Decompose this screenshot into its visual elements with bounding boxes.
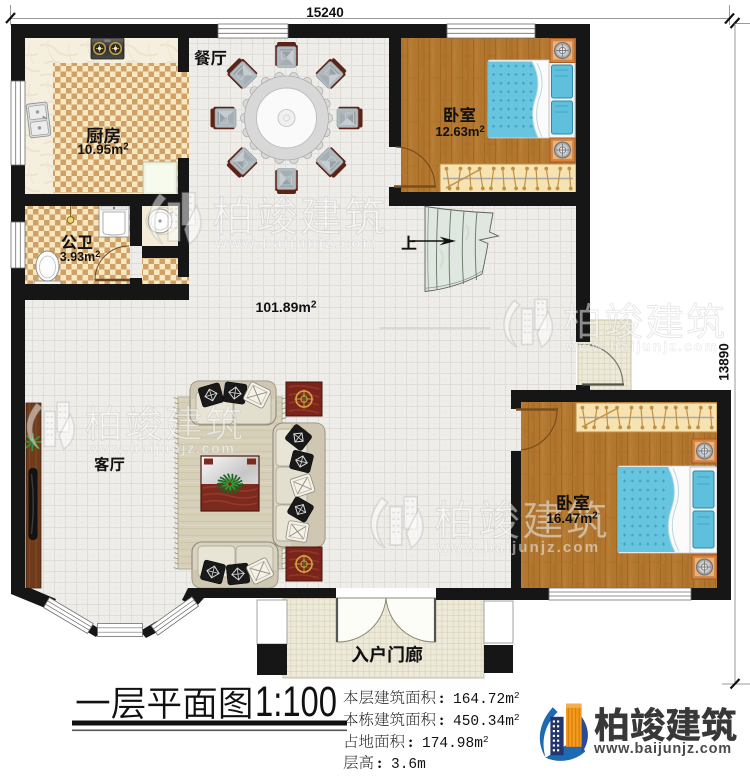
svg-text:12.63m2: 12.63m2 (435, 123, 484, 139)
svg-text:www.baijunjz.com: www.baijunjz.com (565, 339, 719, 355)
svg-text:174.98m2: 174.98m2 (422, 734, 489, 752)
svg-text:www.baijunjz.com: www.baijunjz.com (593, 741, 732, 757)
svg-text:164.72m2: 164.72m2 (453, 690, 520, 708)
svg-text:16.47m2: 16.47m2 (546, 511, 597, 526)
svg-text::: : (408, 734, 413, 751)
svg-text:101.89m2: 101.89m2 (256, 299, 317, 315)
svg-text:www.baijunjz.com: www.baijunjz.com (214, 235, 378, 252)
svg-text:www.baijunjz.com: www.baijunjz.com (436, 539, 600, 556)
svg-text::: : (439, 690, 444, 707)
svg-text:www.baijunjz.com: www.baijunjz.com (86, 440, 236, 456)
svg-text::: : (377, 755, 382, 772)
svg-text:15240: 15240 (306, 5, 344, 20)
svg-text:450.34m2: 450.34m2 (453, 712, 520, 730)
svg-text::: : (439, 712, 444, 729)
svg-text:3.93m2: 3.93m2 (60, 249, 100, 264)
svg-text:3.6m: 3.6m (391, 757, 426, 772)
svg-text:1:100: 1:100 (255, 678, 337, 726)
svg-text:10.95m2: 10.95m2 (77, 142, 128, 157)
